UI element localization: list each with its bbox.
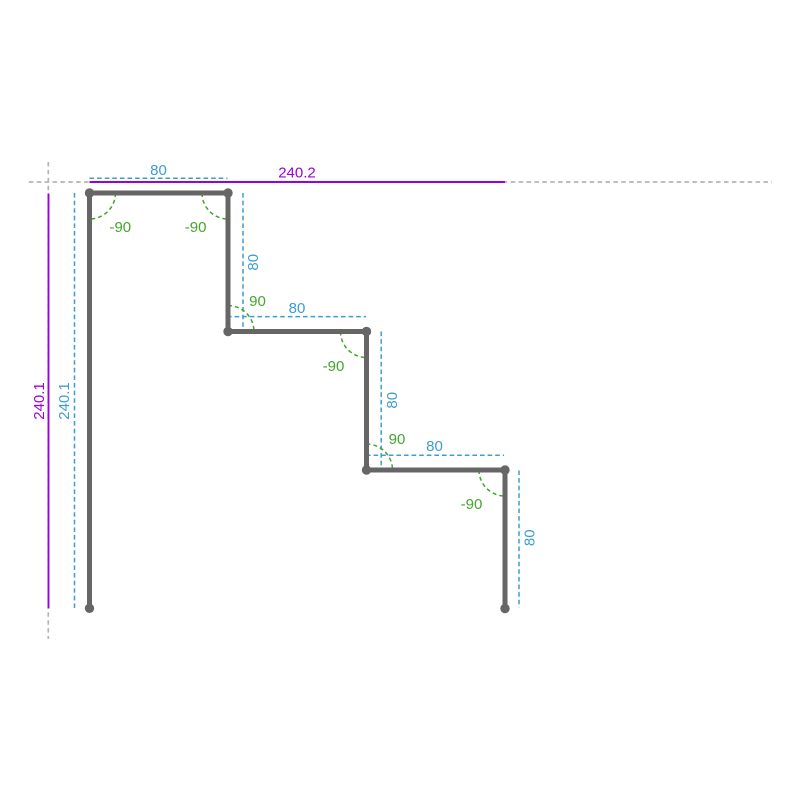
svg-text:-90: -90 xyxy=(109,219,131,236)
svg-text:80: 80 xyxy=(426,438,443,455)
svg-text:90: 90 xyxy=(249,293,266,310)
svg-text:80: 80 xyxy=(289,300,306,317)
svg-text:80: 80 xyxy=(384,392,401,409)
svg-text:80: 80 xyxy=(521,529,538,546)
svg-text:240.1: 240.1 xyxy=(31,382,48,420)
svg-text:-90: -90 xyxy=(323,358,345,375)
svg-text:240.2: 240.2 xyxy=(278,165,316,182)
svg-text:-90: -90 xyxy=(461,496,483,513)
svg-text:240.1: 240.1 xyxy=(56,382,73,420)
svg-text:80: 80 xyxy=(150,162,167,179)
svg-text:90: 90 xyxy=(389,431,406,448)
svg-text:-90: -90 xyxy=(185,219,207,236)
svg-text:80: 80 xyxy=(245,254,262,271)
